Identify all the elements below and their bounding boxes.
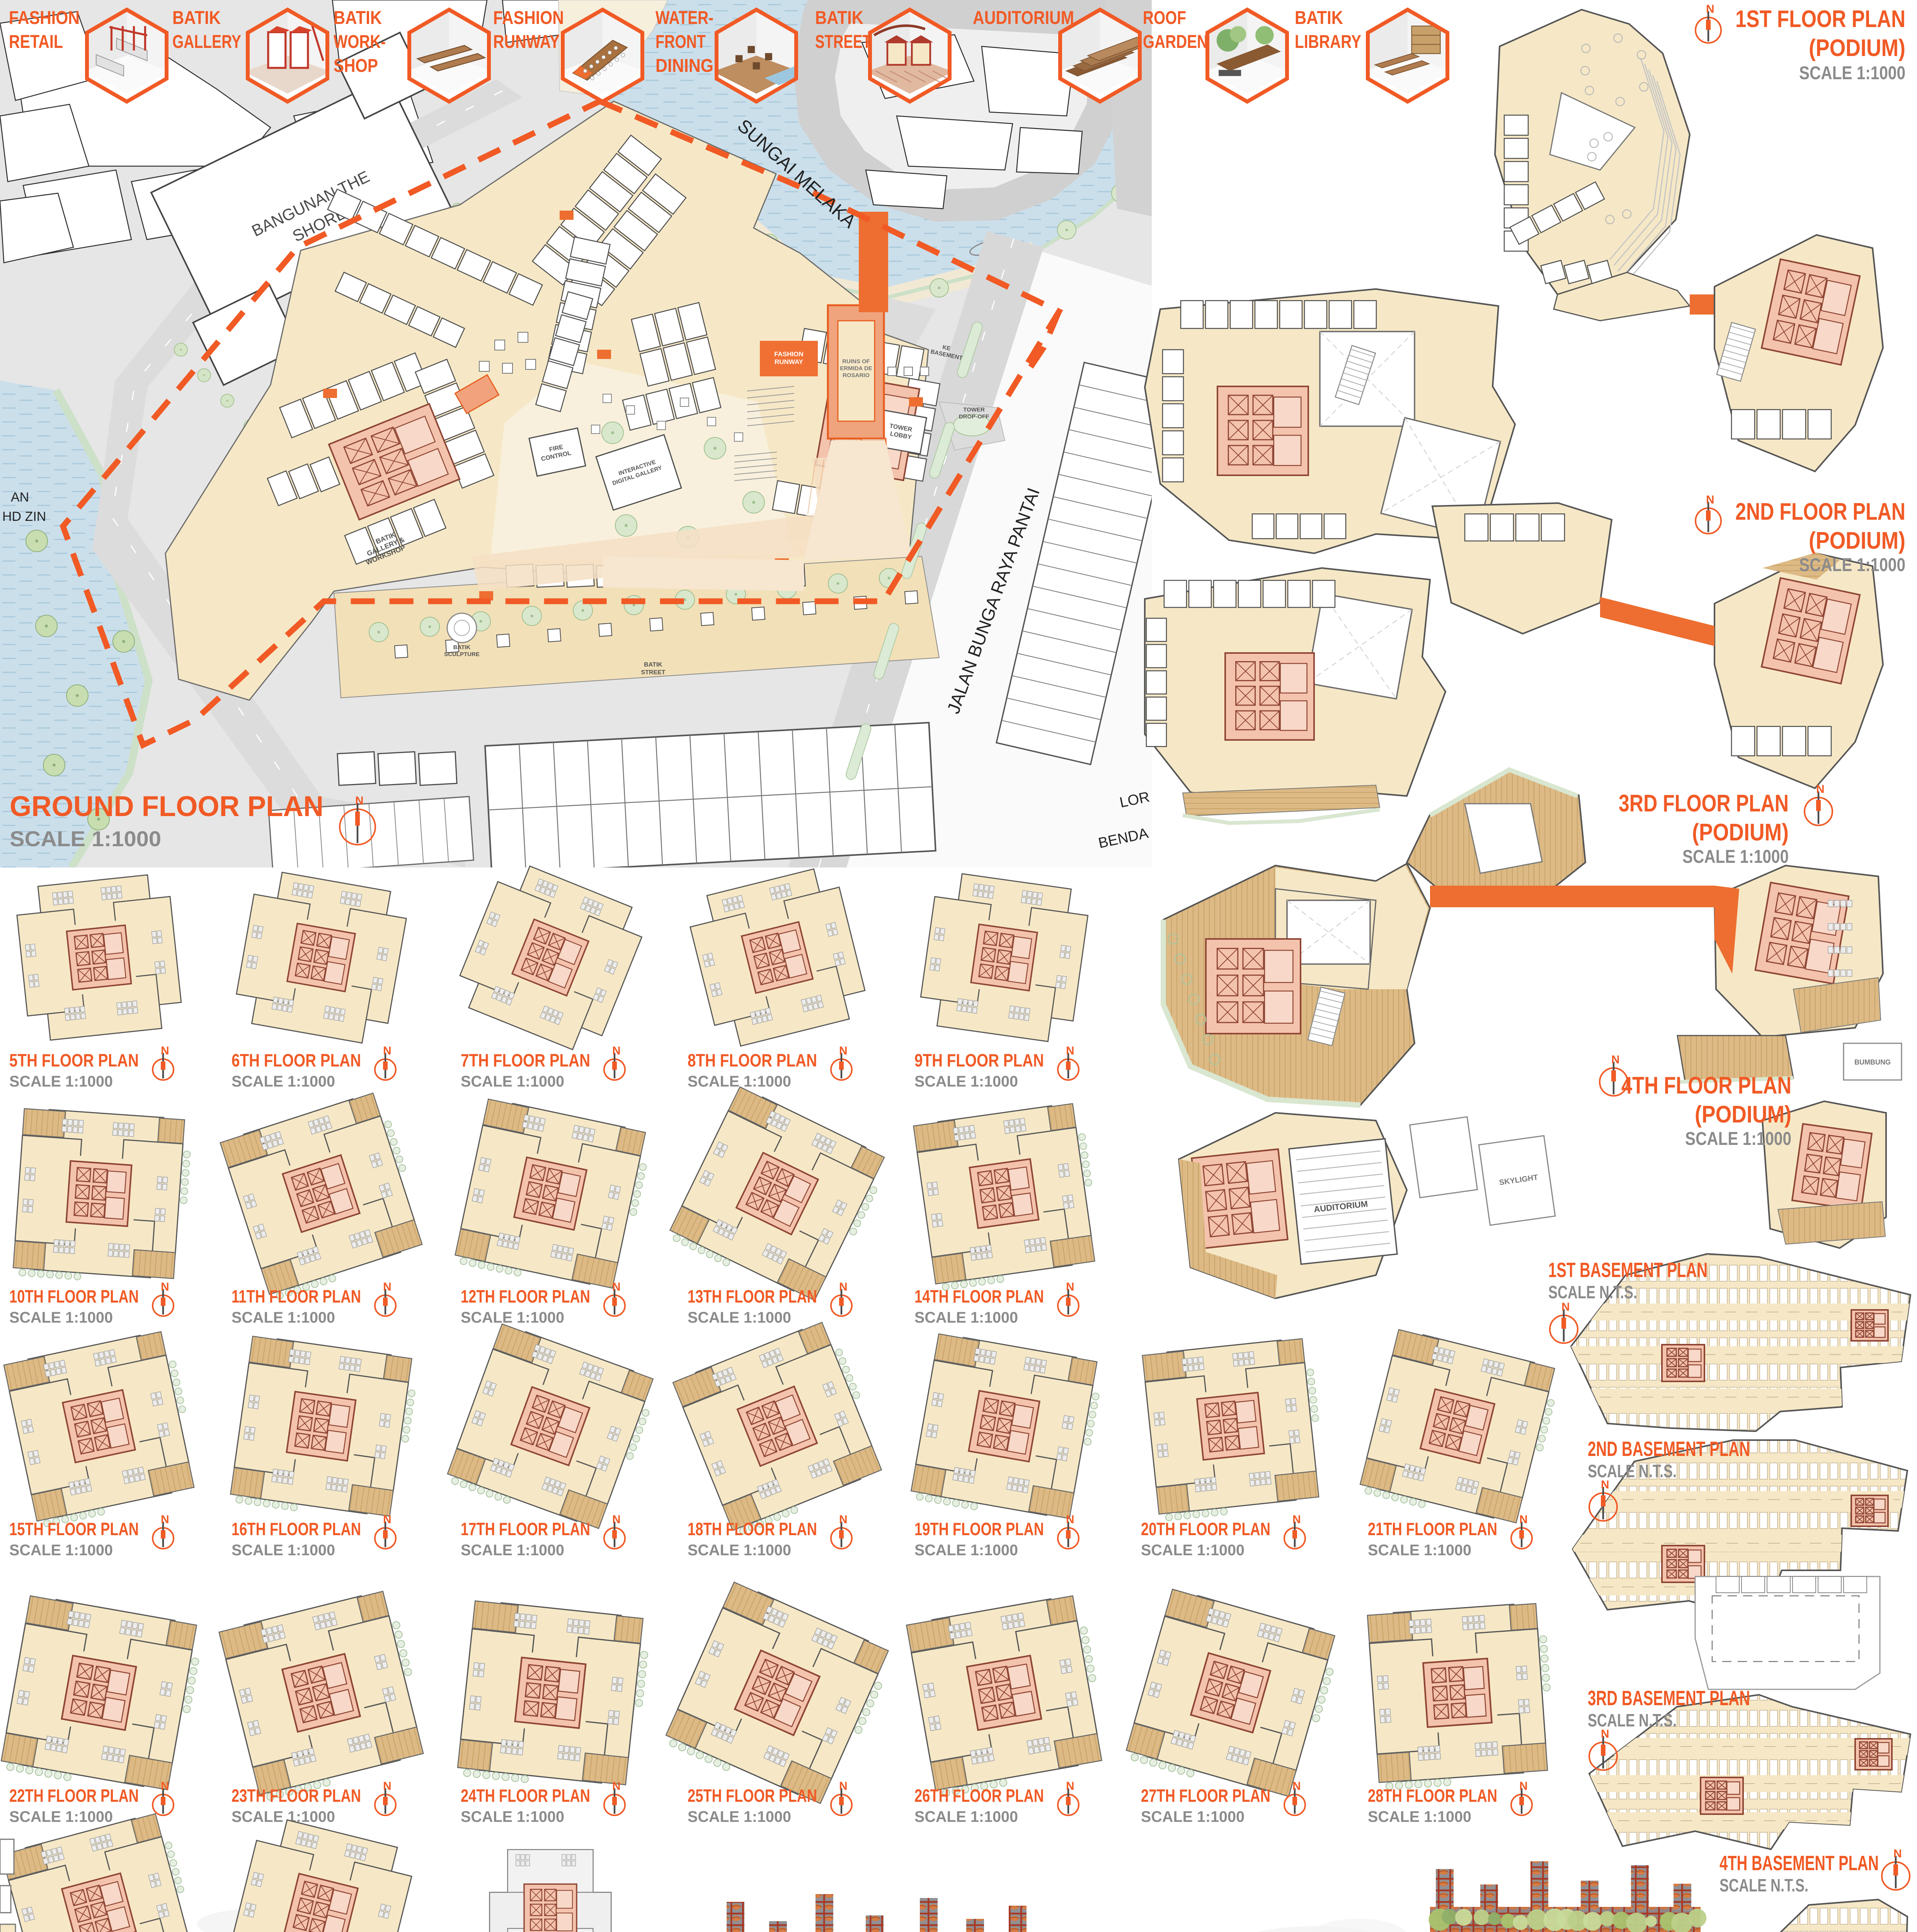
svg-text:BATIK: BATIK [815,8,863,28]
svg-text:GALLERY: GALLERY [172,32,241,52]
svg-text:SCALE 1:1000: SCALE 1:1000 [10,827,161,851]
svg-text:N: N [383,1780,392,1793]
svg-text:3RD FLOOR PLAN: 3RD FLOOR PLAN [1619,790,1789,817]
svg-text:(PODIUM): (PODIUM) [1692,819,1789,846]
svg-text:28TH FLOOR PLAN: 28TH FLOOR PLAN [1368,1786,1497,1806]
svg-text:1ST BASEMENT PLAN: 1ST BASEMENT PLAN [1548,1259,1708,1282]
svg-text:24TH FLOOR PLAN: 24TH FLOOR PLAN [461,1786,590,1806]
svg-text:SCALE 1:1000: SCALE 1:1000 [1141,1542,1245,1559]
svg-text:DROP-OFF: DROP-OFF [959,413,989,420]
svg-text:BUMBUNG: BUMBUNG [1854,1058,1891,1066]
svg-text:N: N [1816,783,1825,796]
svg-text:HD ZIN: HD ZIN [2,509,46,524]
svg-text:5TH FLOOR PLAN: 5TH FLOOR PLAN [9,1050,139,1070]
svg-text:N: N [839,1281,848,1293]
svg-text:N: N [1066,1281,1074,1293]
svg-text:7TH FLOOR PLAN: 7TH FLOOR PLAN [461,1050,590,1070]
svg-text:SCALE 1:1000: SCALE 1:1000 [232,1309,335,1326]
svg-text:SCALE 1:1000: SCALE 1:1000 [461,1073,564,1090]
svg-text:BATIK: BATIK [1295,8,1343,28]
svg-text:N: N [839,1780,848,1793]
svg-text:11TH FLOOR PLAN: 11TH FLOOR PLAN [232,1286,361,1306]
svg-text:N: N [612,1513,621,1526]
svg-text:SCALE 1:1000: SCALE 1:1000 [688,1542,791,1559]
svg-text:N: N [839,1044,848,1057]
svg-text:(PODIUM): (PODIUM) [1695,1101,1791,1128]
svg-text:SCALE 1:1000: SCALE 1:1000 [232,1542,335,1559]
svg-text:N: N [1519,1780,1528,1793]
svg-text:26TH FLOOR PLAN: 26TH FLOOR PLAN [914,1786,1044,1806]
svg-text:N: N [1706,3,1714,15]
svg-text:N: N [1706,493,1714,506]
svg-text:ERMIDA DE: ERMIDA DE [840,365,872,372]
svg-text:RUINS OF: RUINS OF [842,358,870,365]
svg-text:BATIK: BATIK [172,8,221,28]
svg-text:23TH FLOOR PLAN: 23TH FLOOR PLAN [232,1786,361,1806]
svg-text:17TH FLOOR PLAN: 17TH FLOOR PLAN [461,1519,590,1539]
svg-text:GARDEN: GARDEN [1143,32,1208,52]
svg-text:SHOP: SHOP [334,56,378,76]
svg-text:N: N [161,1780,169,1793]
svg-text:STREET: STREET [641,669,665,676]
svg-text:N: N [1292,1513,1301,1526]
svg-text:3RD BASEMENT PLAN: 3RD BASEMENT PLAN [1588,1687,1750,1710]
svg-text:N: N [1601,1728,1609,1740]
svg-text:SCALE 1:1000: SCALE 1:1000 [9,1309,113,1326]
svg-text:SCALE 1:1000: SCALE 1:1000 [914,1542,1018,1559]
svg-text:GROUND FLOOR PLAN: GROUND FLOOR PLAN [10,790,323,822]
svg-text:SCALE 1:1000: SCALE 1:1000 [914,1309,1018,1326]
svg-text:SCALE 1:1000: SCALE 1:1000 [461,1808,564,1825]
svg-text:ROSARIO: ROSARIO [843,372,870,379]
svg-text:RUNWAY: RUNWAY [493,32,560,52]
svg-text:SCALE 1:1000: SCALE 1:1000 [9,1073,113,1090]
svg-text:4TH FLOOR PLAN: 4TH FLOOR PLAN [1621,1072,1791,1099]
svg-text:SCALE 1:1000: SCALE 1:1000 [1799,555,1905,575]
svg-text:12TH FLOOR PLAN: 12TH FLOOR PLAN [461,1286,590,1306]
svg-text:RETAIL: RETAIL [9,32,63,52]
svg-text:FASHION: FASHION [493,8,564,28]
svg-text:FASHION: FASHION [9,8,80,28]
svg-text:N: N [1292,1780,1301,1793]
svg-text:16TH FLOOR PLAN: 16TH FLOOR PLAN [232,1519,361,1539]
svg-text:N: N [383,1281,392,1293]
svg-text:10TH FLOOR PLAN: 10TH FLOOR PLAN [9,1286,139,1306]
svg-text:N: N [355,794,364,807]
svg-text:SCALE 1:1000: SCALE 1:1000 [9,1808,113,1825]
svg-text:N: N [161,1044,169,1057]
svg-text:SCALE 1:1000: SCALE 1:1000 [688,1808,791,1825]
svg-text:FRONT: FRONT [655,32,706,52]
svg-text:SCALE 1:1000: SCALE 1:1000 [1368,1542,1471,1559]
svg-text:SCALE 1:1000: SCALE 1:1000 [1141,1808,1245,1825]
svg-text:N: N [612,1281,621,1293]
svg-text:SCALE 1:1000: SCALE 1:1000 [688,1309,791,1326]
svg-text:N: N [1519,1513,1528,1526]
svg-text:2ND BASEMENT PLAN: 2ND BASEMENT PLAN [1588,1437,1750,1461]
svg-text:N: N [161,1513,169,1526]
svg-text:N: N [161,1281,169,1293]
svg-text:N: N [1611,1053,1620,1066]
svg-text:22TH FLOOR PLAN: 22TH FLOOR PLAN [9,1786,139,1806]
svg-text:SCULPTURE: SCULPTURE [444,651,480,658]
svg-text:RUNWAY: RUNWAY [775,358,804,366]
svg-text:N: N [1601,1478,1609,1491]
svg-text:SCALE 1:1000: SCALE 1:1000 [1368,1808,1471,1825]
svg-text:BATIK: BATIK [334,8,382,28]
svg-text:STREET: STREET [815,32,871,52]
svg-text:FASHION: FASHION [774,350,804,358]
svg-text:21TH FLOOR PLAN: 21TH FLOOR PLAN [1368,1519,1497,1539]
svg-text:DINING: DINING [655,56,713,76]
svg-text:25TH FLOOR PLAN: 25TH FLOOR PLAN [688,1786,817,1806]
svg-text:N: N [1066,1044,1074,1057]
svg-text:1ST FLOOR PLAN: 1ST FLOOR PLAN [1735,6,1905,32]
svg-text:8TH FLOOR PLAN: 8TH FLOOR PLAN [688,1050,817,1070]
svg-text:14TH FLOOR PLAN: 14TH FLOOR PLAN [914,1286,1044,1306]
svg-text:BATIK: BATIK [644,662,662,668]
svg-text:ROOF: ROOF [1143,8,1186,28]
svg-text:2ND FLOOR PLAN: 2ND FLOOR PLAN [1735,498,1905,525]
svg-text:SCALE 1:1000: SCALE 1:1000 [914,1808,1018,1825]
svg-text:SCALE N.T.S.: SCALE N.T.S. [1548,1282,1637,1302]
svg-text:SCALE 1:1000: SCALE 1:1000 [914,1073,1018,1090]
svg-text:N: N [1893,1847,1902,1860]
svg-text:SCALE 1:1000: SCALE 1:1000 [1682,847,1789,867]
svg-text:SCALE 1:1000: SCALE 1:1000 [232,1073,335,1090]
svg-text:SCALE 1:1000: SCALE 1:1000 [461,1309,564,1326]
svg-text:N: N [383,1513,392,1526]
svg-text:N: N [1561,1301,1570,1313]
svg-text:SCALE 1:1000: SCALE 1:1000 [461,1542,564,1559]
svg-text:N: N [1066,1513,1074,1526]
svg-text:SCALE 1:1000: SCALE 1:1000 [1685,1129,1791,1149]
svg-text:LIBRARY: LIBRARY [1295,32,1361,52]
svg-text:(PODIUM): (PODIUM) [1809,35,1905,61]
svg-text:N: N [839,1513,848,1526]
svg-text:WATER-: WATER- [655,8,713,28]
svg-text:18TH FLOOR PLAN: 18TH FLOOR PLAN [688,1519,817,1539]
svg-text:SCALE 1:1000: SCALE 1:1000 [1799,63,1905,83]
svg-text:19TH FLOOR PLAN: 19TH FLOOR PLAN [914,1519,1044,1539]
svg-text:13TH FLOOR PLAN: 13TH FLOOR PLAN [688,1286,817,1306]
svg-text:SCALE 1:1000: SCALE 1:1000 [232,1808,335,1825]
svg-text:WORK-: WORK- [334,32,386,52]
svg-text:N: N [612,1044,621,1057]
svg-text:SCALE 1:1000: SCALE 1:1000 [9,1542,113,1559]
svg-text:20TH FLOOR PLAN: 20TH FLOOR PLAN [1141,1519,1270,1539]
svg-text:27TH FLOOR PLAN: 27TH FLOOR PLAN [1141,1786,1270,1806]
svg-text:N: N [612,1780,621,1793]
svg-text:15TH FLOOR PLAN: 15TH FLOOR PLAN [9,1519,139,1539]
svg-text:(PODIUM): (PODIUM) [1809,527,1905,554]
svg-text:TOWER: TOWER [963,406,985,413]
svg-text:N: N [383,1044,392,1057]
svg-text:AN: AN [11,490,29,505]
svg-text:4TH BASEMENT PLAN: 4TH BASEMENT PLAN [1720,1852,1879,1875]
svg-text:BATIK: BATIK [453,644,471,651]
svg-text:N: N [1066,1780,1074,1793]
svg-text:AUDITORIUM: AUDITORIUM [973,8,1074,28]
svg-text:6TH FLOOR PLAN: 6TH FLOOR PLAN [232,1050,361,1070]
svg-text:SCALE N.T.S.: SCALE N.T.S. [1720,1875,1808,1895]
svg-text:9TH FLOOR PLAN: 9TH FLOOR PLAN [914,1050,1044,1070]
